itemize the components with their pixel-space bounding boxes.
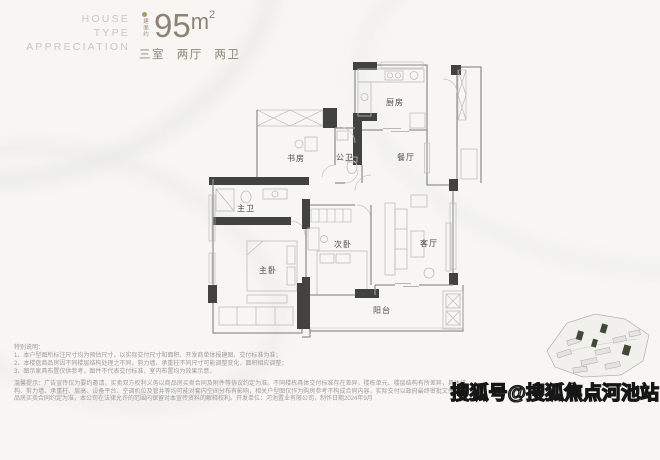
entry-door-arc (355, 175, 371, 191)
room-label-dining: 餐厅 (397, 153, 415, 162)
master-bedroom-walls (208, 179, 302, 333)
disclaimer-item: 1、本户型图所标注尺寸均为预估尺寸，以实际交付尺寸和面积、开发商单体报建图、交付… (14, 352, 466, 360)
area-unit: m (191, 9, 209, 35)
room-label-balcony: 阳台 (373, 305, 391, 315)
site-boundary (547, 314, 649, 377)
watermark-text: 搜狐号@搜狐焦点河池站 (450, 378, 659, 405)
living-room-furniture (385, 195, 451, 278)
right-structure (443, 65, 481, 183)
disclaimer-notice: 温馨提示：广告宣传仅为要约邀请，买卖双方权利义务以商品房买卖合同及附件等协议约定… (14, 381, 466, 404)
room-label-study: 书房 (287, 153, 305, 163)
area-prefix: 建面约 (137, 12, 152, 38)
brand-line-3: APPRECIATION (18, 40, 130, 54)
second-bedroom-furniture (308, 209, 367, 295)
brand-tagline: HOUSE TYPE APPRECIATION (18, 12, 130, 54)
study-walls (209, 108, 337, 185)
room-label-master-bath: 主卫 (237, 203, 255, 213)
room-label-kitchen: 厨房 (386, 97, 404, 107)
area-prefix-label: 建面约 (142, 18, 147, 38)
disclaimer-block: 特别说明： 1、本户型图所标注尺寸均为预估尺寸，以实际交付尺寸和面积、开发商单体… (14, 344, 466, 404)
disclaimer-item: 2、本楼盘商品房因不同楼层结构处理之不同，剪力墙、承重柱不同尺寸可能调整变化，面… (14, 360, 466, 368)
area-unit-sup: 2 (209, 9, 215, 21)
room-label-master-bedroom: 主卧 (259, 265, 277, 275)
room-label-second-bedroom: 次卧 (334, 239, 352, 249)
room-label-public-bath: 公卫 (336, 153, 354, 162)
area-block: 建面约 95m2 (137, 9, 215, 43)
disclaimer-title: 特别说明： (14, 344, 466, 352)
area-value: 95 (154, 9, 191, 43)
floor-plan: 厨房 餐厅 公卫 书房 主卫 主卧 次卧 客厅 阳台 (205, 53, 505, 343)
dining-wall (425, 130, 454, 185)
master-bedroom-furniture (219, 241, 297, 325)
room-label-living-room: 客厅 (420, 238, 438, 248)
disclaimer-item: 3、图示家具布置仅供参考，图件不代表交付标准，室内布置均为效果示意。 (14, 368, 466, 376)
brand-line-2: TYPE (18, 26, 130, 40)
study-fixtures (295, 137, 317, 151)
accent-dot-icon (142, 12, 147, 17)
site-plan (537, 309, 655, 385)
kitchen-walls (353, 62, 427, 165)
master-bath-walls (213, 217, 305, 235)
brand-line-1: HOUSE (18, 12, 130, 26)
